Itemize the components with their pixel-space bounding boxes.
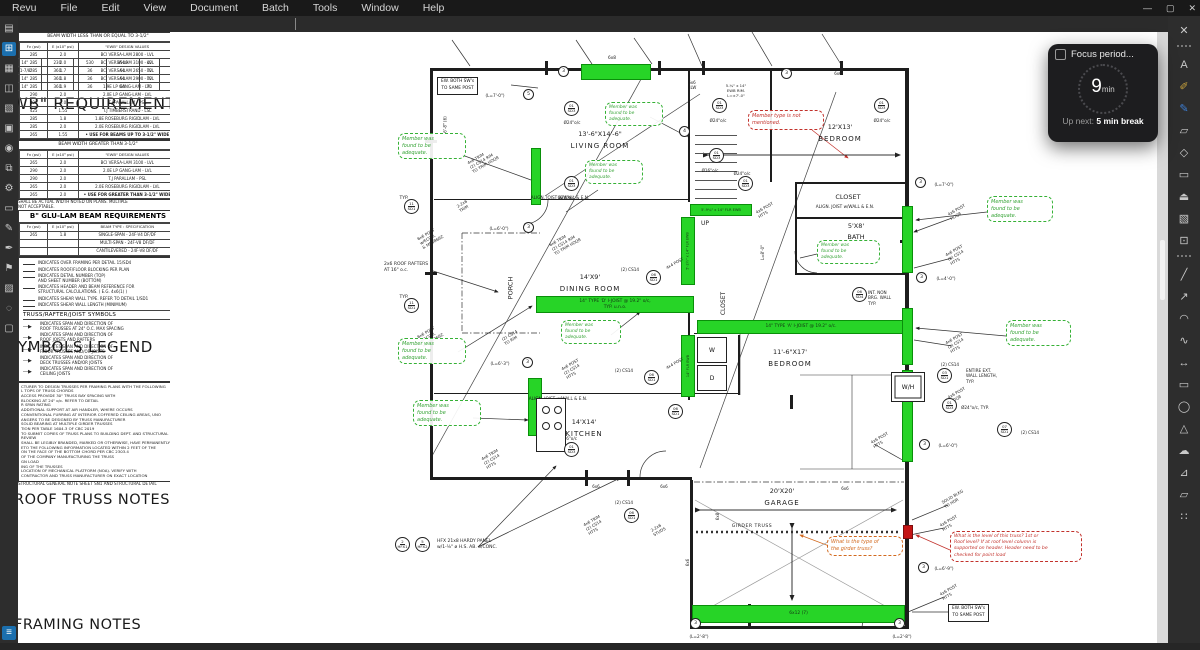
note-box-line: TO SAME POST (952, 613, 985, 620)
line-tool-icon[interactable]: ╱ (1176, 267, 1192, 283)
dimension-tool-icon[interactable]: ↔ (1176, 355, 1192, 371)
plan-slanted-label: 6x6 TRIM(2) CS14 RIMTO TRIM HDQ8 (549, 229, 582, 256)
plan-label: Ø24"o/c (558, 195, 575, 200)
plan-label: 12'X13' (828, 123, 853, 131)
tab-bar (18, 16, 1168, 32)
pen-tool-icon[interactable]: ✎ (1176, 101, 1192, 117)
detail-reference-bubble: 06SD1 (668, 404, 683, 419)
cloud-text-line: adequate. (565, 335, 617, 341)
detail-reference-bubble: 01SD3 (738, 176, 753, 191)
plan-label-line: TYP. (966, 379, 997, 384)
plan-vertical-label: 6x8 (715, 513, 720, 520)
arrow-tool-icon[interactable]: ↗ (1176, 289, 1192, 305)
plan-vertical-label: 6x6 (685, 559, 690, 566)
cloud-callout-markup[interactable]: What is the level of this truss? 1st orR… (950, 531, 1082, 562)
detail-reference-bubble: 01SD3 (942, 398, 957, 413)
shearwall-type-circle: 3 (690, 618, 701, 629)
focus-title: Focus period... (1071, 49, 1134, 60)
plan-label: (2) CS14 (615, 500, 633, 505)
detail-reference-bubble: 06SD1 (624, 508, 639, 523)
plan-slanted-label: 2-2x6STUDS (650, 523, 667, 538)
spaces-icon[interactable]: ◉ (2, 142, 16, 156)
sheet-number: SD3 (878, 106, 886, 110)
shearwall-type-circle: 3 (781, 68, 792, 79)
plan-label: CLOSET (835, 193, 860, 201)
wall-segment (795, 273, 907, 275)
toolbox-icon[interactable]: ▣ (2, 122, 16, 136)
beam-label: 6x12 (7) (789, 611, 808, 616)
sheet-number: HFX1 (397, 545, 407, 549)
cloud-callout-markup[interactable]: Member wasfound to beadequate. (561, 320, 621, 344)
plan-label: (L=2'-8") (892, 634, 911, 639)
detail-reference-bubble: 01SD3 (709, 148, 724, 163)
flag-icon[interactable]: ⚑ (2, 262, 16, 276)
toolbar-divider (1177, 45, 1191, 51)
appliance-box: W (697, 337, 727, 363)
sheet-number: SD1 (408, 306, 416, 310)
links-icon[interactable]: ⧉ (2, 162, 16, 176)
wall-segment (430, 477, 692, 480)
plan-vertical-label: CLOSET (720, 292, 727, 315)
plan-label: (L=2'-8") (689, 634, 708, 639)
menu-bar: RevuFileEditViewDocumentBatchToolsWindow… (0, 0, 1200, 16)
stove-burner (554, 422, 562, 430)
cloud-text-line: Member was (402, 341, 462, 348)
highlight-beam-markup[interactable] (902, 308, 913, 365)
focus-app-icon (1055, 49, 1066, 60)
highlight-beam-markup[interactable]: 5'-9¼" x 14" FLR EWB (690, 204, 752, 216)
bookmarks-icon[interactable]: ◫ (2, 82, 16, 96)
beam-label: 5'-9¼" x 14" FLR EWB (701, 208, 741, 212)
detail-reference-bubble: 01SD3 (564, 101, 579, 116)
plan-label: 14'X14' (572, 418, 597, 426)
cloud-text-line: adequate. (1010, 337, 1067, 344)
rectangle-tool-icon[interactable]: ▭ (1176, 377, 1192, 393)
cloud-text-line: adequate. (402, 355, 462, 362)
detail-reference-bubble: 01SD3 (712, 98, 727, 113)
signature-icon[interactable]: ✒ (2, 242, 16, 256)
highlighter-tool-icon[interactable]: ✐ (1176, 79, 1192, 95)
sheet-number: SD1 (648, 378, 656, 382)
cloud-callout-markup[interactable]: Member wasfound to beadequate. (1006, 320, 1071, 346)
cloud-tool-icon[interactable]: ☁ (1176, 443, 1192, 459)
detail-reference-bubble: 06SD1 (646, 270, 661, 285)
minimize-icon[interactable]: — (1143, 3, 1152, 13)
detail-reference-bubble: 01SD3 (874, 98, 889, 113)
wall-tick (790, 395, 793, 409)
plan-label: (L=6'-3") (490, 361, 509, 366)
cloud-text-line: the girder truss? (831, 546, 899, 553)
cloud-callout-markup[interactable]: Member wasfound to beadequate. (987, 196, 1053, 222)
plan-slanted-label: 4x6 POSTHDQ8 (947, 204, 968, 222)
note-box[interactable]: EW. BOTH SW'sTO SAME POST (948, 604, 989, 622)
markup-edit-icon[interactable]: ✎ (2, 222, 16, 236)
sheet-number: SD1 (672, 412, 680, 416)
plan-slanted-label: 2-2x6TRIM (456, 200, 471, 214)
plan-label: 14'X9' (580, 273, 600, 281)
stair-tread (695, 180, 737, 181)
count-tool-icon[interactable]: ∷ (1176, 509, 1192, 525)
appliance-box: W/H (891, 372, 925, 402)
sheet-number: SD3 (946, 406, 954, 410)
plan-label: DINING ROOM (560, 285, 621, 294)
beam-label: 5'-2½" x 14" FLR EWB (686, 232, 690, 270)
wall-segment (434, 393, 688, 394)
beam-label: 14" TYPE 'A' I-JOIST @ 19.2" o/c. (766, 324, 837, 329)
plan-label: BLW (688, 85, 697, 90)
toolbar-divider (1177, 255, 1191, 261)
focus-time-value: 9 (1091, 66, 1102, 108)
cloud-callout-markup[interactable]: Member wasfound to beadequate. (398, 133, 466, 159)
plan-label: UP (701, 220, 709, 228)
stove-burner (554, 406, 562, 414)
comments-icon[interactable]: ▢ (2, 322, 16, 336)
plan-label: 11'-6"X17' (773, 348, 807, 356)
plan-label: Ø24"o/c (710, 118, 727, 123)
plan-label: GIRDER TRUSS (732, 524, 772, 530)
cloud-text-line: What is the type of (831, 539, 899, 546)
plan-label: L=±7'-0" (727, 94, 744, 99)
beam-label: TYP. u.n.o. (604, 305, 626, 310)
detail-reference-bubble: 2HFX1 (395, 537, 410, 552)
sheet-number: SD3 (568, 184, 576, 188)
layers-icon[interactable]: ▧ (2, 102, 16, 116)
plan-label: 6x6 (660, 484, 667, 489)
plan-label: (L=4'-0") (936, 276, 955, 281)
plan-label: (L=6'-0") (938, 443, 957, 448)
plan-label: (2) CS14 (1021, 430, 1039, 435)
menu-item-view[interactable]: View (132, 0, 179, 16)
image-tool-icon[interactable]: ▧ (1176, 211, 1192, 227)
detail-reference-bubble: 03SD1 (937, 368, 952, 383)
focus-time-unit: min (1102, 85, 1115, 94)
cloud-text-line: found to be (991, 206, 1049, 213)
note-box-line: EW. BOTH SW's (441, 79, 474, 86)
callout-tool-icon[interactable]: ▭ (1176, 167, 1192, 183)
note-box-line: TO SAME POST (441, 86, 474, 93)
cloud-callout-markup[interactable]: Member wasfound to beadequate. (817, 240, 880, 264)
cloud-text-line: mentioned. (752, 120, 820, 127)
cloud-text-line: checked for point load (954, 553, 1078, 559)
detail-reference-bubble: 06SD1 (644, 370, 659, 385)
plan-slanted-label: 4x6 POST(2) CS14HTT5 (945, 332, 969, 354)
menu-item-document[interactable]: Document (178, 0, 250, 16)
ellipse-tool-icon[interactable]: ◯ (1176, 399, 1192, 415)
stamp-tool-icon[interactable]: ⏏ (1176, 189, 1192, 205)
appliance-box: D (697, 365, 727, 391)
plan-slanted-label: 4x6 TRIM(2) CS14HTT5 (583, 515, 606, 537)
plan-label: (2) CS14 (941, 362, 959, 367)
stair-tread (695, 198, 737, 199)
detail-reference-bubble: 11SD1 (404, 199, 419, 214)
menu-item-help[interactable]: Help (411, 0, 457, 16)
plan-label: (2) CS14 (621, 267, 639, 272)
cloud-text-line: Member was (991, 199, 1049, 206)
note-box-line: EW. BOTH SW's (952, 606, 985, 613)
plan-label: BEDROOM (818, 135, 862, 144)
plan-slanted-label: 4x6 POST(2) CS14HTT5 (945, 244, 969, 266)
snapshot-tool-icon[interactable]: ▱ (1176, 123, 1192, 139)
plan-label-line: AT 16" o.c. (384, 268, 428, 274)
stair-tread (695, 189, 737, 190)
cloud-text-line: adequate. (402, 150, 462, 157)
wall-tick (702, 61, 705, 75)
sheet-number: SD3 (742, 184, 750, 188)
perimeter-tool-icon[interactable]: ⊿ (1176, 465, 1192, 481)
focus-timer-ring: 9 min (1078, 64, 1128, 114)
plan-label-line: w/1-⅛" ø H.S. AB. o/CONC. (437, 545, 497, 551)
sheet-number: SD3 (568, 109, 576, 113)
plan-label: 13'-6"X14'-6" (578, 130, 622, 138)
highlight-beam-markup[interactable]: 5'-2½" x 14" FLR EWB (681, 217, 695, 285)
shearwall-type-circle: 3 (916, 272, 927, 283)
focus-up-next-value: 5 min break (1096, 116, 1143, 126)
shearwall-type-circle: 3 (915, 177, 926, 188)
sheet-number: SD3 (568, 450, 576, 454)
plan-label-line: TYP. (868, 301, 891, 306)
settings-gear-icon[interactable]: ⚙ (2, 182, 16, 196)
note-box[interactable]: EW. BOTH SW'sTO SAME POST (437, 77, 478, 95)
sheet-number: SD4 (856, 295, 864, 299)
wall-segment (694, 393, 740, 394)
plan-label: LIVING ROOM (571, 142, 630, 151)
plan-slanted-label: (2) CS14TO RIM (501, 330, 521, 347)
plan-label: BEDROOM (768, 360, 812, 369)
window-controls: —▢✕ (1143, 0, 1196, 16)
plan-label: Ø24"o/c, TYP. (961, 405, 989, 410)
plan-label-line: 2x6 ROOF RAFTERS (384, 262, 428, 268)
cloud-callout-markup[interactable]: Member wasfound to beadequate. (585, 160, 643, 184)
close-icon[interactable]: ✕ (1176, 23, 1192, 39)
plan-label: HFX 21x8 HARDY PANELw/1-⅛" ø H.S. AB. o/… (437, 539, 497, 550)
plan-label: (L=7'-0") (485, 93, 504, 98)
plan-label: 6x6 (841, 486, 848, 491)
stove-burner (542, 422, 550, 430)
wall-segment (738, 335, 740, 395)
plan-label-line: BRG. WALL (868, 295, 891, 300)
plan-label: Ø24"o/c (564, 120, 581, 125)
plan-slanted-label: 4x6 POSTHTT5 (939, 515, 960, 533)
plan-vertical-label: 6'-8" (6) (443, 116, 448, 132)
detail-reference-bubble: 01SD3 (564, 442, 579, 457)
shearwall-type-circle: 3 (523, 222, 534, 233)
plan-label: (L=6'-9") (934, 566, 953, 571)
markup-list-icon[interactable]: ≡ (2, 626, 16, 640)
stair-tread (695, 144, 737, 145)
wall-segment (690, 626, 909, 629)
plan-label: (L=6'-0") (489, 226, 508, 231)
plan-label: (2) CS14 (615, 368, 633, 373)
wall-tick (545, 61, 548, 75)
sheet-number: SD3 (716, 106, 724, 110)
focus-up-next-label: Up next: (1062, 116, 1094, 126)
plan-label: Ø16"o/c (702, 168, 719, 173)
plan-label: ENTIRE EXT.WALL LENGTH,TYP. (966, 368, 997, 384)
tab-separator (295, 18, 296, 30)
sheet-number: HFX2 (417, 545, 427, 549)
shearwall-type-circle: 5 (523, 89, 534, 100)
cloud-text-line: Member type is not (752, 113, 820, 120)
menu-item-revu[interactable]: Revu (0, 0, 49, 16)
plan-label: GARAGE (764, 499, 799, 508)
grid-icon[interactable]: ▦ (2, 62, 16, 76)
plan-label: 20'X20' (770, 487, 795, 495)
thumbnails-icon[interactable]: ⊞ (2, 42, 16, 56)
menu-item-edit[interactable]: Edit (89, 0, 131, 16)
red-highlight-markup[interactable] (903, 525, 913, 539)
cloud-callout-markup[interactable]: Member wasfound to beadequate. (398, 338, 466, 364)
cloud-text-line: adequate. (589, 175, 639, 181)
plan-vertical-label: PORCH (506, 277, 514, 300)
plan-slanted-label: 4x6 POSTHTT5 (870, 432, 891, 450)
wall-segment (795, 182, 797, 275)
detail-reference-bubble: 06SD4 (852, 287, 867, 302)
bottom-bar (0, 643, 1200, 650)
cloud-text-line: found to be (402, 348, 462, 355)
detail-reference-bubble: 07SD1 (997, 422, 1012, 437)
cloud-text-line: adequate. (991, 213, 1049, 220)
menu-item-window[interactable]: Window (349, 0, 410, 16)
wall-segment (797, 217, 907, 219)
shearwall-type-circle: 3 (558, 66, 569, 77)
restore-icon[interactable]: ▢ (1166, 3, 1175, 14)
arc-tool-icon[interactable]: ◠ (1176, 311, 1192, 327)
menu-item-batch[interactable]: Batch (250, 0, 301, 16)
plan-slanted-label: 4x6 TRIM(2) CS14 RIMTO TRIM HDQ8 (467, 147, 500, 174)
search-icon[interactable]: ◌ (2, 302, 16, 316)
floor-plan: 14" TYPE 'D' I-JOIST @ 19.2" o/c,TYP. u.… (0, 0, 1200, 650)
wall-tick (658, 61, 661, 75)
plan-label: 6x8 (608, 56, 616, 61)
left-panel-toolbar: ▤⊞▦◫▧▣◉⧉⚙▭✎✒⚑▨◌▢≡ (0, 16, 18, 650)
cloud-callout-markup[interactable]: Member wasfound to beadequate. (605, 102, 663, 126)
cloud-callout-markup[interactable]: Member type is notmentioned. (748, 110, 824, 130)
plan-label-line: HFX 21x8 HARDY PANEL (437, 539, 497, 545)
plan-label: 5'X8' (848, 222, 864, 230)
stove-burner (542, 406, 550, 414)
highlight-beam-markup[interactable]: 6x12 (7) (692, 605, 905, 623)
area-tool-icon[interactable]: ▱ (1176, 487, 1192, 503)
plan-vertical-label: L=8'-0" (760, 245, 765, 260)
highlight-beam-markup[interactable] (581, 64, 651, 80)
cloud-text-line: found to be (1010, 330, 1067, 337)
menu-items: RevuFileEditViewDocumentBatchToolsWindow… (0, 0, 456, 16)
sheet-number: SD1 (408, 207, 416, 211)
plan-slanted-label: SOLID BLKGTO HDR (941, 489, 967, 509)
revu-window: RevuFileEditViewDocumentBatchToolsWindow… (0, 0, 1200, 650)
ruler-icon[interactable]: ▭ (2, 202, 16, 216)
highlight-beam-markup[interactable]: 14" TYPE 'A' I-JOIST @ 19.2" o/c. (697, 320, 905, 334)
highlight-beam-markup[interactable]: 14" FLR EWB (681, 335, 695, 397)
shearwall-type-circle: 4 (679, 126, 690, 137)
plan-label: INT. NONBRG. WALLTYP. (868, 290, 891, 306)
detail-reference-bubble: 5HFX2 (415, 537, 430, 552)
sheet-number: SD1 (1001, 430, 1009, 434)
close-icon[interactable]: ✕ (1188, 3, 1196, 14)
plan-label: 6x6 (834, 71, 841, 76)
highlight-beam-markup[interactable]: 14" TYPE 'D' I-JOIST @ 19.2" o/c,TYP. u.… (536, 296, 694, 313)
cloud-callout-markup[interactable]: What is the type ofthe girder truss? (827, 536, 903, 556)
plan-label: 2x6 ROOF RAFTERSAT 16" o.c. (384, 262, 428, 273)
shearwall-type-circle: 3 (918, 562, 929, 573)
menu-item-file[interactable]: File (49, 0, 90, 16)
menu-item-tools[interactable]: Tools (301, 0, 350, 16)
shearwall-type-circle: 3 (894, 618, 905, 629)
detail-reference-bubble: 11SD1 (404, 298, 419, 313)
cloud-text-line: Member was (402, 136, 462, 143)
sheet-number: SD1 (941, 376, 949, 380)
plan-label: ALIGN. JOIST w/WALL & E.N. (816, 204, 874, 209)
markup-toolbar: ✕A✐✎▱◇▭⏏▧⊡╱↗◠∿↔▭◯△☁⊿▱∷ (1168, 16, 1200, 650)
plan-label: Ø24"o/c (874, 118, 891, 123)
cloud-text-line: adequate. (609, 117, 659, 123)
cloud-text-line: Member was (417, 403, 477, 410)
cloud-text-line: found to be (402, 143, 462, 150)
detail-reference-bubble: 01SD3 (564, 176, 579, 191)
text-tool-icon[interactable]: A (1176, 57, 1192, 73)
focus-timer-widget[interactable]: Focus period... 9 min Up next: 5 min bre… (1048, 44, 1158, 142)
plan-label-line: WALL LENGTH, (966, 373, 997, 378)
wall-tick (585, 470, 588, 486)
wall-tick (627, 470, 630, 486)
beam-label: 14" FLR EWB (686, 355, 690, 377)
focus-up-next: Up next: 5 min break (1048, 116, 1158, 126)
cloud-text-line: Member was (1010, 323, 1067, 330)
sheet-number: SD1 (628, 516, 636, 520)
cloud-text-line: found to be (417, 410, 477, 417)
select-region-icon[interactable]: ⊡ (1176, 233, 1192, 249)
attachments-icon[interactable]: ▨ (2, 282, 16, 296)
polygon-tool-icon[interactable]: ◇ (1176, 145, 1192, 161)
sheet-number: SD3 (713, 156, 721, 160)
stair-tread (695, 135, 737, 136)
plan-label: 6x6 (592, 484, 599, 489)
plan-slanted-label: 4x6 TRIM(2) CS14HTT5 (481, 449, 504, 471)
cloud-text-line: adequate. (417, 417, 477, 424)
file-icon[interactable]: ▤ (2, 22, 16, 36)
shearwall-type-circle: 3 (522, 357, 533, 368)
shearwall-type-circle: 3 (919, 439, 930, 450)
plan-slanted-label: 4x6 POST(2) CS14HTT5 (561, 358, 585, 380)
highlight-beam-markup[interactable] (902, 206, 913, 273)
plan-label: (L=7'-0") (934, 182, 953, 187)
sheet-number: SD1 (650, 278, 658, 282)
plan-slanted-label: 4x6 POSTHTT5 (939, 584, 960, 602)
polyline-tool-icon[interactable]: ∿ (1176, 333, 1192, 349)
cloud-callout-markup[interactable]: Member wasfound to beadequate. (413, 400, 481, 426)
polygon-sketch-tool-icon[interactable]: △ (1176, 421, 1192, 437)
cloud-text-line: adequate. (821, 255, 876, 261)
plan-slanted-label: 4x6 POSTHTT5 (755, 202, 776, 220)
wall-segment (795, 182, 907, 184)
